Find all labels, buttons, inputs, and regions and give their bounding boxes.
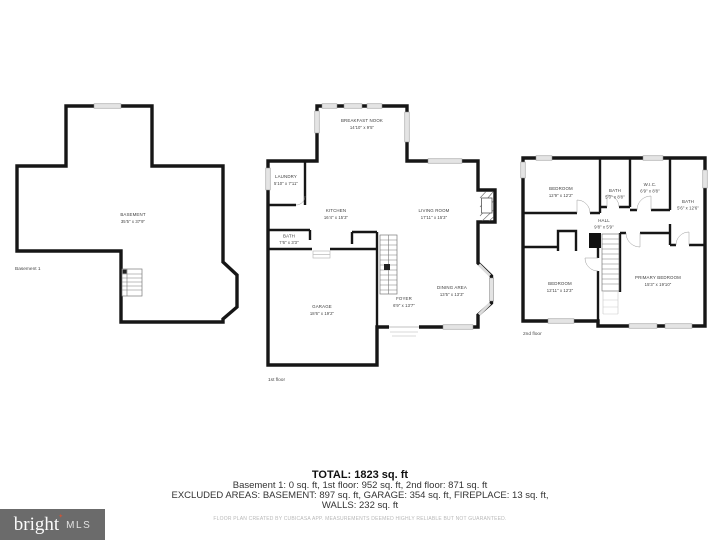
room-label: DINING AREA [437,285,467,290]
room-label: BATH [609,188,621,193]
room-dims: 6'9" x 13'7" [393,303,415,308]
chimney-icon [589,233,601,248]
garage-step-icon [313,251,330,258]
first-floor-plan: BREAKFAST NOOK 14'10" x 9'5" LAUNDRY 5'1… [266,104,495,383]
front-door-icon [389,324,419,336]
basement-plan: BASEMENT 35'5" x 37'9" Basement 1 [15,104,237,322]
second-floor-label: 2nd floor [523,331,542,337]
floorplan-page: BASEMENT 35'5" x 37'9" Basement 1 [0,0,720,540]
room-dims: 13'5" x 13'3" [440,292,465,297]
room-label: W.I.C. [644,182,657,187]
room-label: LAUNDRY [275,174,297,179]
room-dims: 5'6" x 12'6" [677,206,699,211]
room-dims: 12'11" x 12'3" [547,288,574,293]
room-dims: 16'4" x 15'3" [324,215,349,220]
room-dims: 15'3" x 19'10" [645,282,672,287]
sparkle-icon: ✦ [58,513,63,520]
room-label: BREAKFAST NOOK [341,118,383,123]
disclaimer-text: FLOOR PLAN CREATED BY CUBICASA APP. MEAS… [0,516,720,522]
room-label: BATH [283,234,295,239]
floorplan-drawing: BASEMENT 35'5" x 37'9" Basement 1 [0,0,720,540]
room-label: BEDROOM [548,281,572,286]
walls-area: WALLS: 232 sq. ft [0,501,720,511]
room-label: KITCHEN [326,208,346,213]
room-label: HALL [598,218,610,223]
room-label: LIVING ROOM [419,208,450,213]
room-dims: 17'11" x 15'3" [421,215,448,220]
room-label: BATH [682,199,694,204]
room-dims: 12'9" x 12'2" [549,193,574,198]
room-label: BASEMENT [120,212,146,217]
second-floor-plan: BEDROOM 12'9" x 12'2" BATH 5'0" x 8'8" W… [521,156,707,337]
area-summary: TOTAL: 1823 sq. ft Basement 1: 0 sq. ft,… [0,469,720,522]
first-floor-label: 1st floor [268,377,285,383]
logo-suffix-text: MLS [66,520,91,531]
room-dims: 5'0" x 8'8" [605,195,625,200]
basement-stairs-icon [122,269,142,296]
first-floor-stairs-icon [380,235,397,294]
room-dims: 18'6" x 19'2" [310,311,335,316]
room-dims: 9'8" x 5'9" [594,225,614,230]
room-dims: 7'6" x 3'3" [279,240,299,245]
bright-mls-logo: bright✦MLS [0,509,105,540]
basement-floor-label: Basement 1 [15,266,41,272]
room-dims: 14'10" x 9'5" [350,125,375,130]
room-dims: 35'5" x 37'9" [121,219,146,224]
room-dims: 6'9" x 8'8" [640,189,660,194]
room-label: GARAGE [312,304,332,309]
logo-brand-text: bright [14,515,59,534]
room-label: FOYER [396,296,412,301]
room-dims: 5'10" x 7'11" [274,181,298,186]
window-icon [94,104,121,108]
room-label: BEDROOM [549,186,573,191]
room-label: PRIMARY BEDROOM [635,275,681,280]
